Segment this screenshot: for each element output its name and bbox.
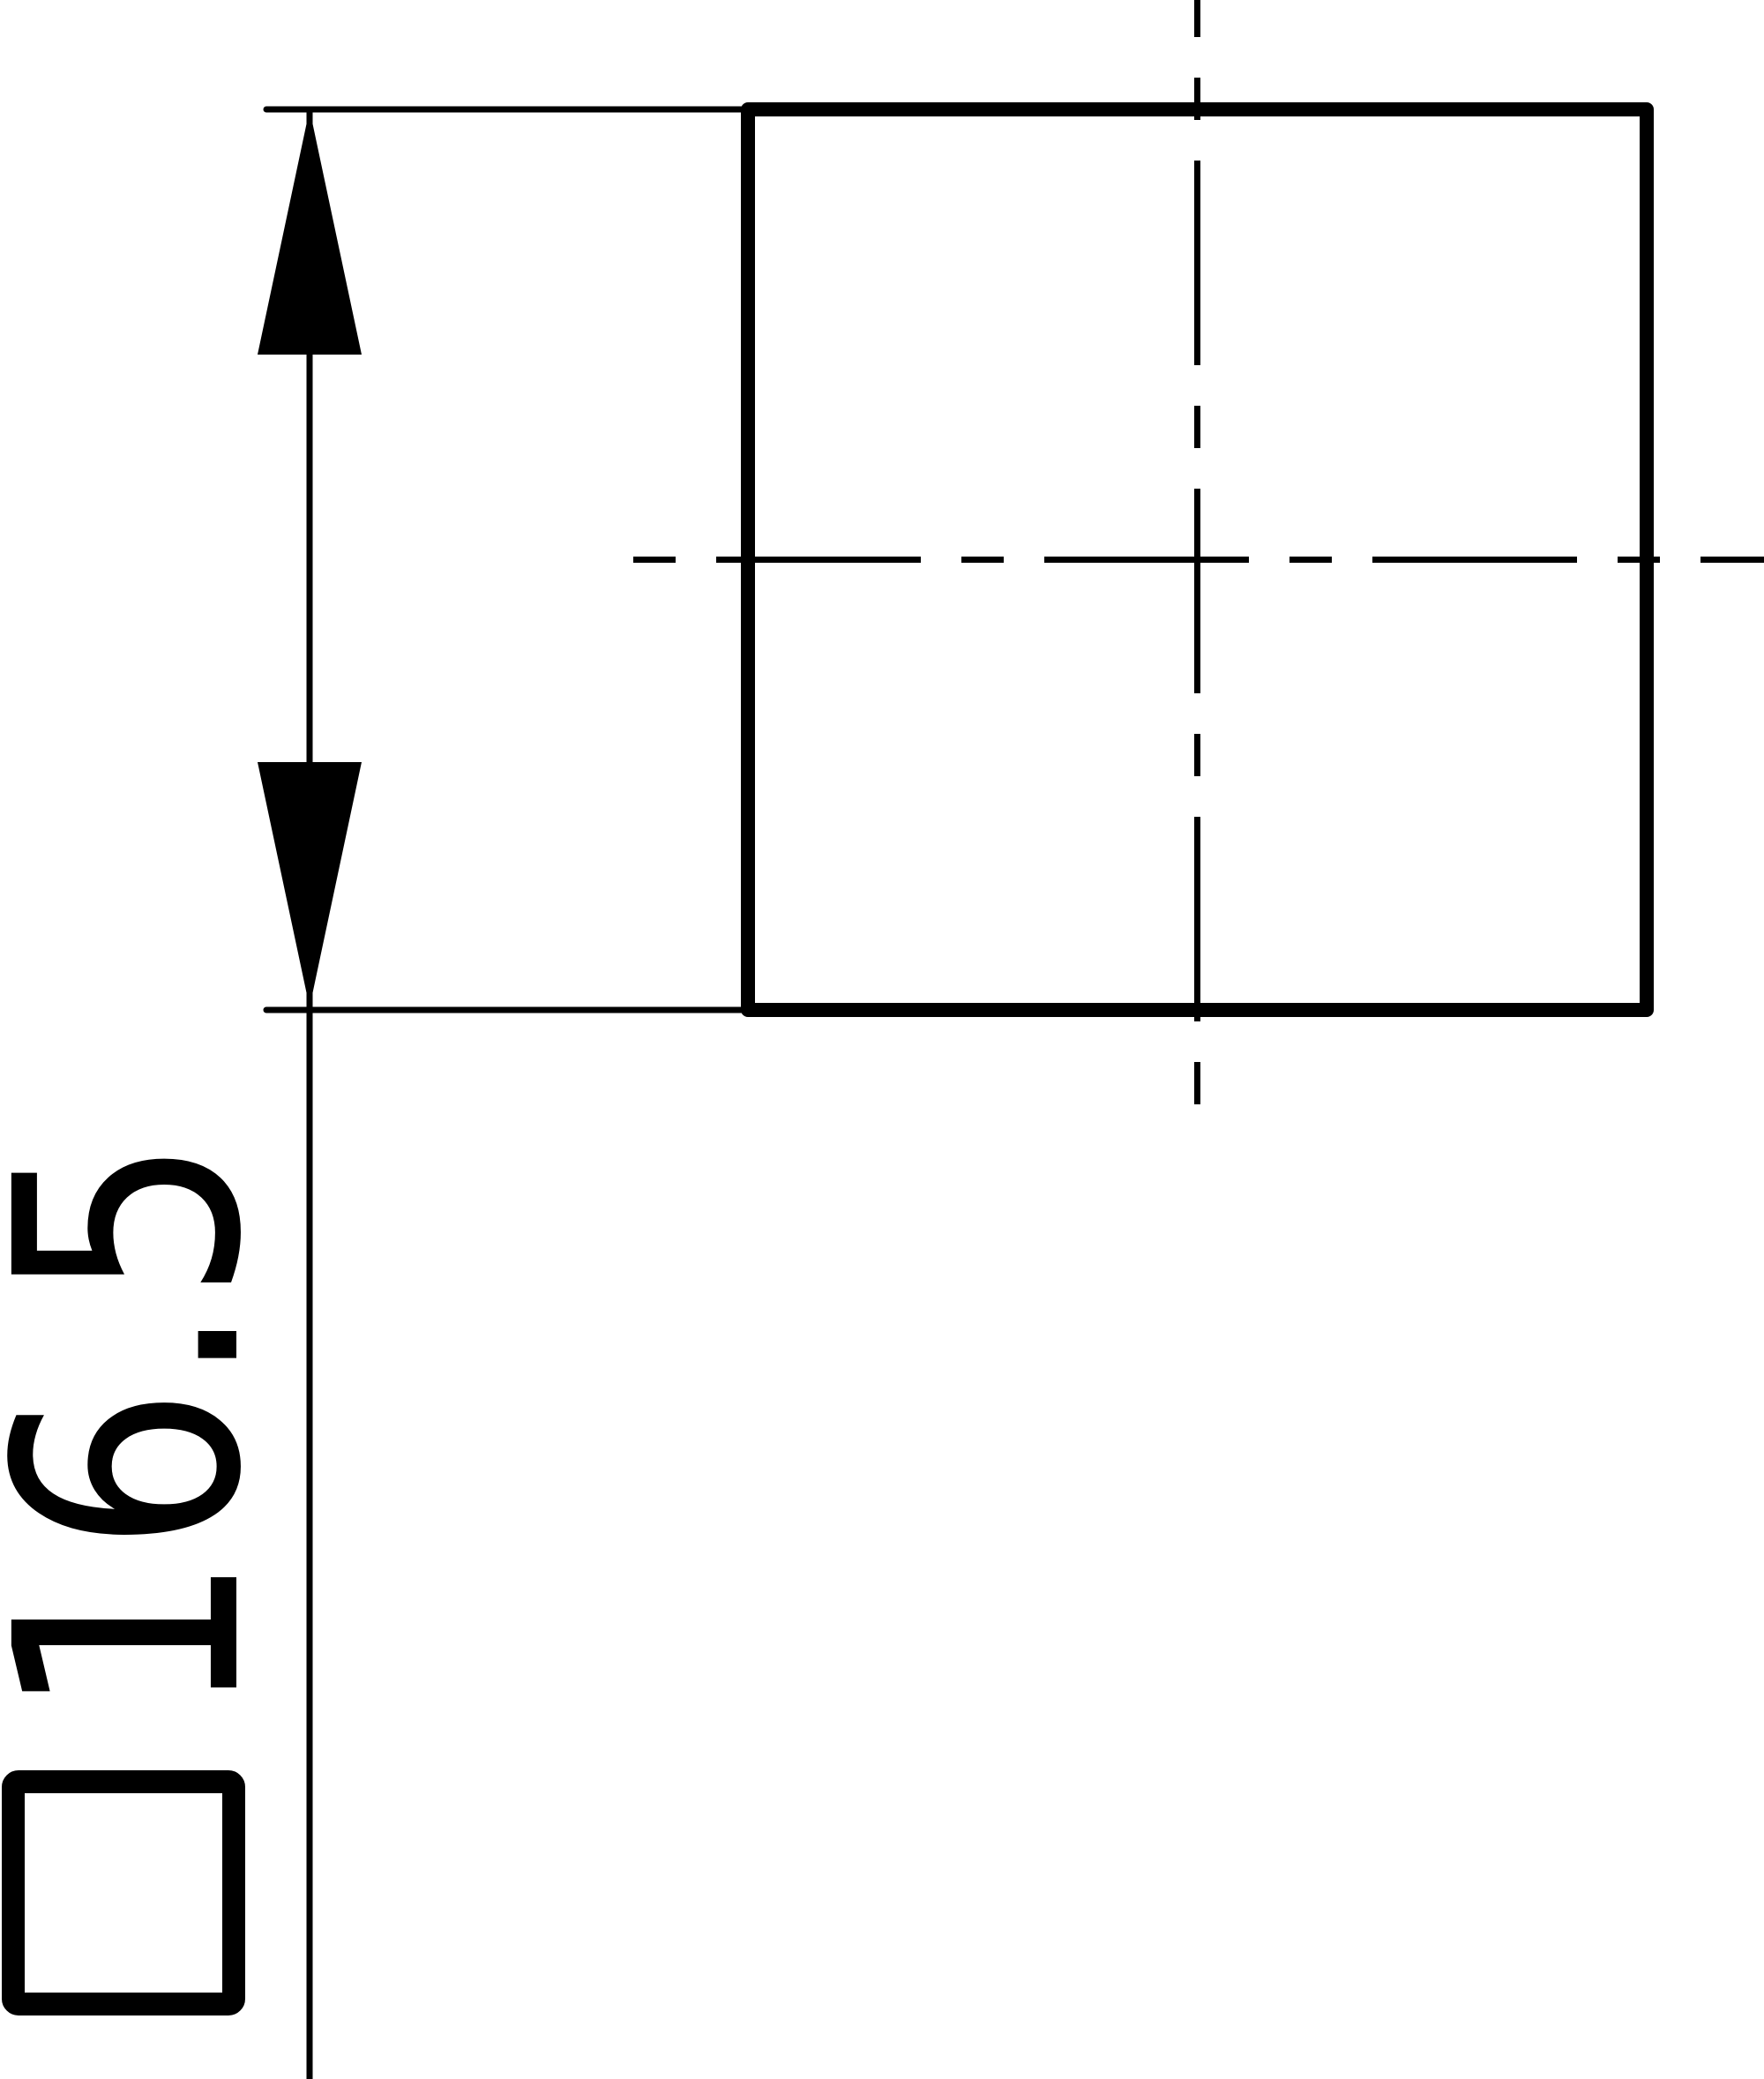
arrowhead-up-icon — [258, 109, 362, 355]
dimension-label: 16.5 — [0, 1136, 310, 2004]
dimension-value-text: 16.5 — [0, 1136, 310, 1720]
drawing-svg: 16.5 — [0, 0, 1764, 2079]
technical-drawing-canvas: 16.5 — [0, 0, 1764, 2079]
arrowhead-down-icon — [258, 762, 362, 1007]
square-symbol-icon — [13, 1782, 234, 2004]
